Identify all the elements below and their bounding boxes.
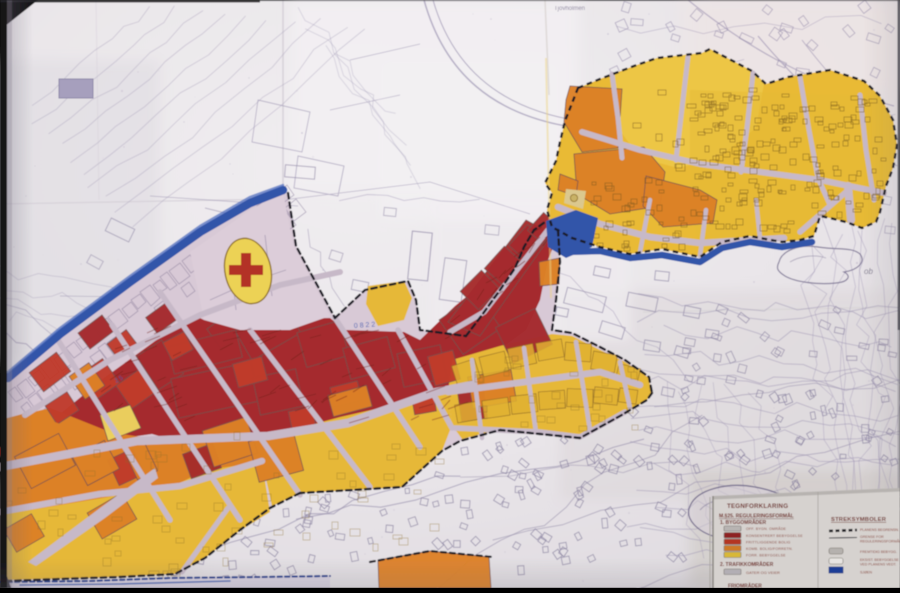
svg-text:M.§25. REGULERINGSFORMÅL: M.§25. REGULERINGSFORMÅL xyxy=(719,513,794,520)
svg-text:GATER OG VEIER: GATER OG VEIER xyxy=(746,570,780,575)
svg-text:FRIOMRÅDER: FRIOMRÅDER xyxy=(728,583,762,589)
svg-text:FRITTLIGGENDE BOLIG: FRITTLIGGENDE BOLIG xyxy=(746,541,791,545)
svg-text:TEGNFORKLARING: TEGNFORKLARING xyxy=(727,503,788,510)
svg-text:2. TRAFIKKOMRÅDER: 2. TRAFIKKOMRÅDER xyxy=(720,561,774,568)
svg-text:1. BYGGOMRÅDER: 1. BYGGOMRÅDER xyxy=(720,519,767,526)
svg-text:KOMB. BOLIG/FORRETN.: KOMB. BOLIG/FORRETN. xyxy=(746,547,793,551)
svg-text:KONSENTRERT BEBYGGELSE: KONSENTRERT BEBYGGELSE xyxy=(746,534,803,538)
svg-text:SJØEN: SJØEN xyxy=(860,571,872,575)
svg-text:FORR. BEBYGGELSE: FORR. BEBYGGELSE xyxy=(746,554,786,558)
svg-text:REGULERINGSFORMÅL: REGULERINGSFORMÅL xyxy=(860,539,900,544)
svg-text:STREKSYMBOLER: STREKSYMBOLER xyxy=(831,517,887,523)
svg-text:FREMTIDIG BEBYGG.: FREMTIDIG BEBYGG. xyxy=(860,550,897,554)
svg-text:OFF. BYGN. OMRÅDE: OFF. BYGN. OMRÅDE xyxy=(746,526,787,531)
svg-text:PLANENS BEGRENSN.: PLANENS BEGRENSN. xyxy=(860,528,899,532)
svg-text:EKSIST. BEBYGGELSE: EKSIST. BEBYGGELSE xyxy=(860,558,899,562)
svg-text:VED PLANENS VEDT.: VED PLANENS VEDT. xyxy=(860,563,897,567)
svg-text:GRENSE FOR: GRENSE FOR xyxy=(860,535,884,539)
